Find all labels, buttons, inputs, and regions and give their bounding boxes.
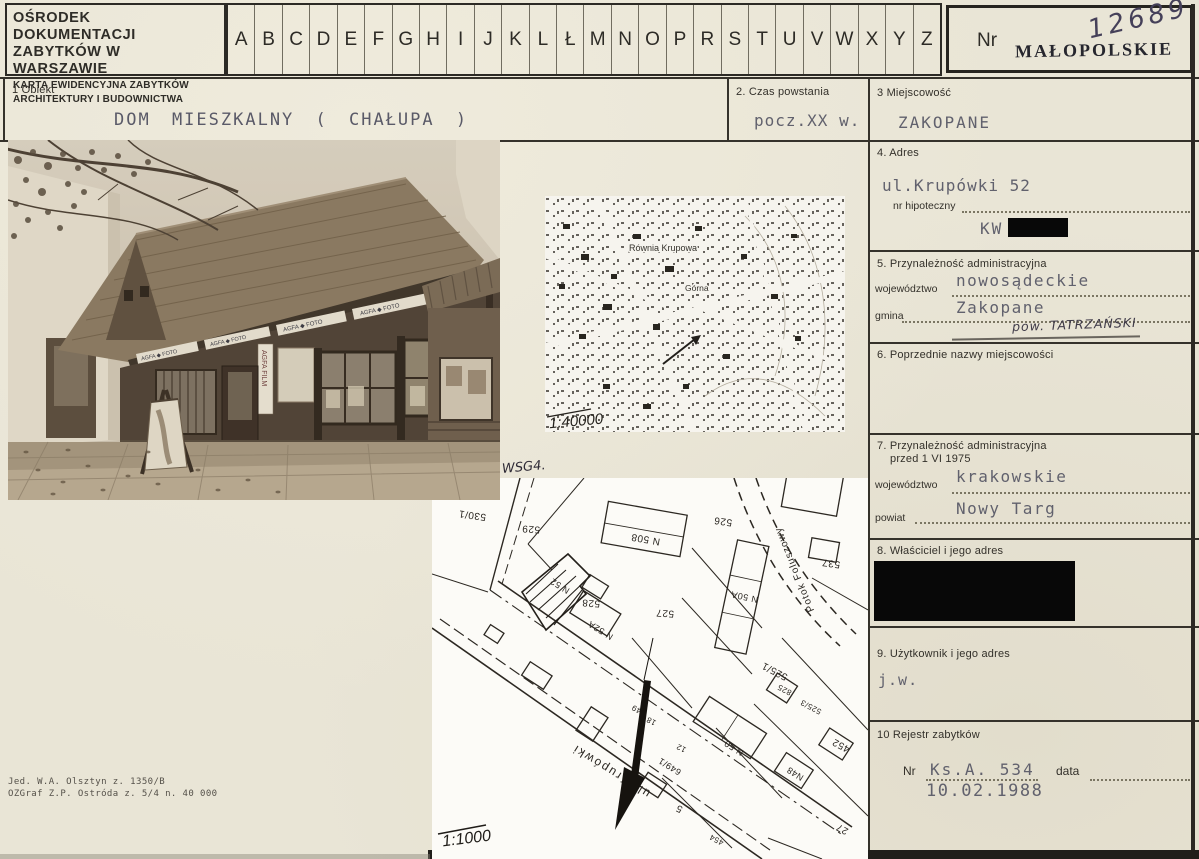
alphabet-cell: T (749, 5, 776, 74)
alphabet-cell: Y (886, 5, 913, 74)
parcel-label: 528 (582, 597, 601, 609)
alphabet-cell: G (393, 5, 420, 74)
field5-label: 5. Przynależność administracyjna (877, 258, 1047, 270)
field4-sublabel: nr hipoteczny (893, 200, 955, 212)
alphabet-cell: Ł (557, 5, 584, 74)
cadastral-map: 530/1 529 528 526 527 537 525/1 825 525/… (432, 478, 868, 859)
field5-gmina-value: Zakopane (956, 298, 1045, 317)
field3-value: ZAKOPANE (898, 113, 991, 132)
alphabet-cell: J (475, 5, 502, 74)
topo-label: Górna (685, 283, 709, 293)
alphabet-cell: P (667, 5, 694, 74)
parcel-label: 527 (656, 607, 675, 619)
field7-label2: przed 1 VI 1975 (890, 453, 971, 465)
print-shop-line: Jed. W.A. Olsztyn z. 1350/B (8, 777, 165, 787)
dotted-rule (915, 520, 1190, 524)
divider (868, 433, 1199, 435)
divider (868, 720, 1199, 722)
alphabet-cell: W (831, 5, 858, 74)
handwritten-note: WSG4. (501, 458, 546, 477)
alphabet-cell: C (283, 5, 310, 74)
divider (727, 78, 729, 140)
parcel-label: 529 (522, 522, 541, 534)
divider (868, 538, 1199, 540)
redaction-box (1008, 218, 1068, 237)
field7-wojewodztwo-value: krakowskie (956, 467, 1067, 486)
institution-line: ZABYTKÓW W WARSZAWIE (13, 44, 218, 78)
alphabet-cell: S (722, 5, 749, 74)
alphabet-cell: I (447, 5, 474, 74)
field9-value: j.w. (878, 671, 918, 689)
field9-label: 9. Użytkownik i jego adres (877, 648, 1010, 660)
alphabet-cell: B (255, 5, 282, 74)
field4-address-value: ul.Krupówki 52 (882, 176, 1031, 195)
nr-label: Nr (977, 30, 997, 52)
field7-label: 7. Przynależność administracyjna (877, 440, 1047, 452)
card-edge (0, 854, 430, 859)
alphabet-cell: D (310, 5, 337, 74)
alphabet-cell: V (804, 5, 831, 74)
topographic-map: Równia Krupowa Górna 1:40000 (545, 196, 845, 432)
alphabet-cell: Z (914, 5, 940, 74)
field1-value: DOM MIESZKALNY ( CHAŁUPA ) (114, 110, 468, 130)
alphabet-cell: H (420, 5, 447, 74)
alphabet-cell: O (639, 5, 666, 74)
alphabet-cell: X (859, 5, 886, 74)
alphabet-cell: F (365, 5, 392, 74)
institution-line: OŚRODEK DOKUMENTACJI (13, 10, 218, 44)
alphabet-cell: R (694, 5, 721, 74)
field7-powiat-value: Nowy Targ (956, 499, 1056, 518)
building-photo: AGFA ◆ FOTO AGFA ◆ FOTO AGFA ◆ FOTO AGFA… (8, 140, 500, 500)
field8-label: 8. Właściciel i jego adres (877, 545, 1003, 557)
alphabet-cell: M (584, 5, 611, 74)
field5-gmina-label: gmina (875, 310, 904, 322)
print-shop-line: OZGraf Z.P. Ostróda z. 5/4 n. 40 000 (8, 789, 217, 799)
card-number-box: Nr MAŁOPOLSKIE 12689 (946, 5, 1193, 73)
divider (3, 78, 5, 140)
dotted-rule (952, 293, 1190, 297)
alphabet-cell: U (776, 5, 803, 74)
field6-label: 6. Poprzednie nazwy miejscowości (877, 349, 1053, 361)
redaction-box (874, 561, 1075, 621)
alphabet-index-strip: A B C D E F G H I J K L Ł M N O P R S T … (226, 3, 942, 76)
field10-date-value: 10.02.1988 (926, 781, 1043, 801)
alphabet-cell: A (228, 5, 255, 74)
divider (868, 250, 1199, 252)
card-edge (1191, 4, 1195, 852)
alphabet-cell: N (612, 5, 639, 74)
alphabet-cell: E (338, 5, 365, 74)
dotted-rule (952, 490, 1190, 494)
field7-powiat-label: powiat (875, 512, 905, 524)
field10-nr-label: Nr (903, 764, 916, 778)
alphabet-cell: K (502, 5, 529, 74)
field2-label: 2. Czas powstania (736, 86, 829, 98)
topo-label: Równia Krupowa (629, 243, 697, 253)
field1-label: 1 Obiekt (12, 84, 55, 96)
field4-kw-label: KW (980, 219, 1003, 238)
field4-label: 4. Adres (877, 147, 919, 159)
institution-header: OŚRODEK DOKUMENTACJI ZABYTKÓW W WARSZAWI… (5, 3, 226, 76)
divider (868, 78, 870, 850)
alphabet-cell: L (530, 5, 557, 74)
building-speckle (545, 196, 845, 432)
dotted-rule (962, 209, 1190, 213)
field3-label: 3 Miejscowość (877, 87, 951, 99)
field10-data-label: data (1056, 764, 1079, 778)
field5-wojewodztwo-value: nowosądeckie (956, 271, 1090, 290)
field5-wojewodztwo-label: województwo (875, 283, 937, 295)
divider (0, 77, 1199, 79)
field10-label: 10 Rejestr zabytków (877, 729, 980, 741)
divider (868, 626, 1199, 628)
field7-wojewodztwo-label: województwo (875, 479, 937, 491)
record-card: OŚRODEK DOKUMENTACJI ZABYTKÓW W WARSZAWI… (0, 0, 1199, 859)
handwritten-underline (952, 335, 1140, 340)
field5-handwritten-note: pow. TATRZAŃSKI (1012, 315, 1137, 334)
divider (868, 342, 1199, 344)
dotted-rule (1090, 777, 1190, 781)
field2-value: pocz.XX w. (754, 111, 860, 130)
sepia-overlay (8, 140, 500, 500)
